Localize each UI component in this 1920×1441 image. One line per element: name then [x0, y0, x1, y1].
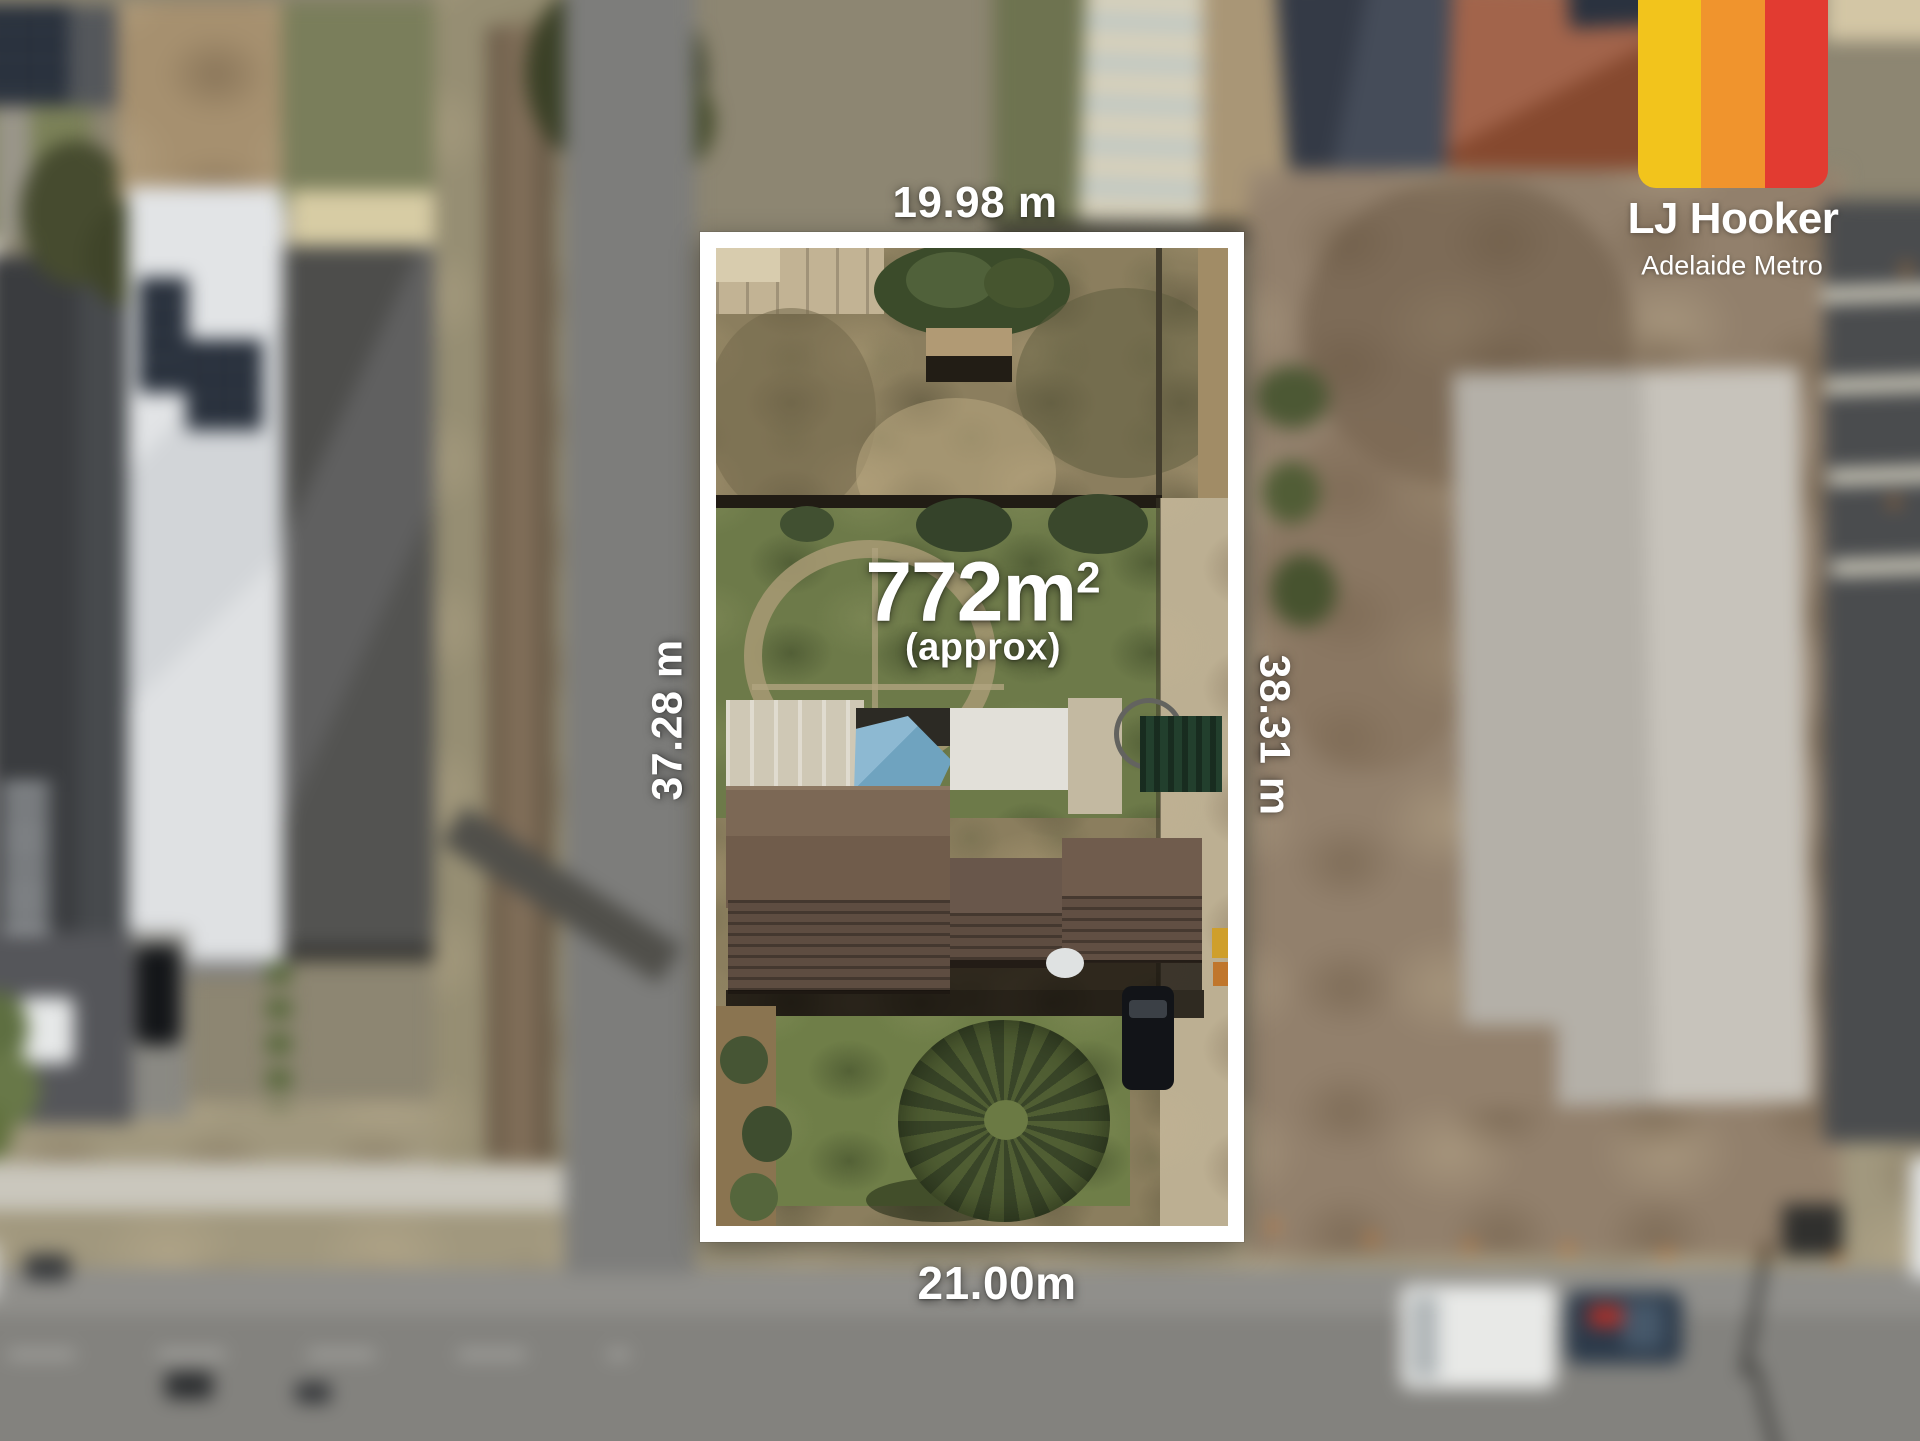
dimension-left-label: 37.28 m: [644, 639, 693, 800]
car-on-road: [296, 1382, 331, 1403]
brand-name: LJ Hooker: [1628, 194, 1839, 244]
solar-panel-roof: [0, 4, 74, 105]
car-on-road: [165, 1372, 213, 1399]
dirt-yard: [118, 2, 288, 201]
warehouse-vents: [1821, 283, 1920, 639]
weeds: [1271, 554, 1337, 626]
dimension-right-label: 38.31 m: [1250, 654, 1299, 815]
survey-markers: [1268, 1222, 1277, 1231]
property-marketing-image: 19.98 m 37.28 m 38.31 m 21.00m 772m2 (ap…: [0, 0, 1920, 1441]
weeds: [1256, 366, 1328, 428]
car-on-road: [24, 1254, 70, 1281]
truck-cab-glass: [1411, 1295, 1438, 1378]
cream-striped-building: [1078, 0, 1219, 227]
weeds: [1262, 461, 1320, 523]
gray-hip-roof-house: [283, 246, 442, 958]
white-truck: [1401, 1285, 1556, 1389]
solar-array: [186, 339, 263, 430]
car-glass: [1622, 1302, 1663, 1350]
parked-car-white: [1910, 1157, 1920, 1279]
brand-region: Adelaide Metro: [1641, 251, 1823, 282]
brand-logo-stripes: [1638, 0, 1828, 188]
scrub-yard: [282, 2, 450, 207]
palm-trunk: [487, 27, 553, 1160]
stripe-red: [1765, 0, 1828, 188]
roof-skylights: [2, 784, 50, 950]
road-lane-line: [8, 1351, 629, 1357]
area-value: 772m: [865, 545, 1076, 639]
cream-roof: [1824, 0, 1920, 41]
house-shadow: [283, 946, 442, 963]
blue-car: [1567, 1291, 1683, 1363]
footpath: [0, 1163, 567, 1211]
dirt-patch: [1459, 1025, 1557, 1108]
concrete-slab: [1452, 367, 1811, 1108]
stripe-yellow: [1638, 0, 1701, 188]
parked-car-black: [135, 946, 181, 1045]
dimension-top-label: 19.98 m: [893, 178, 1058, 228]
solar-array: [138, 277, 188, 393]
property-boundary: [700, 232, 1244, 1242]
trailer: [1783, 1204, 1843, 1256]
area-qualifier: (approx): [905, 627, 1061, 670]
side-road: [565, 0, 695, 1274]
stripe-orange: [1701, 0, 1764, 188]
hedge-row: [267, 963, 292, 1108]
area-superscript: 2: [1076, 554, 1100, 603]
car-roof-marking: [1589, 1306, 1624, 1327]
dimension-bottom-label: 21.00m: [917, 1256, 1076, 1310]
